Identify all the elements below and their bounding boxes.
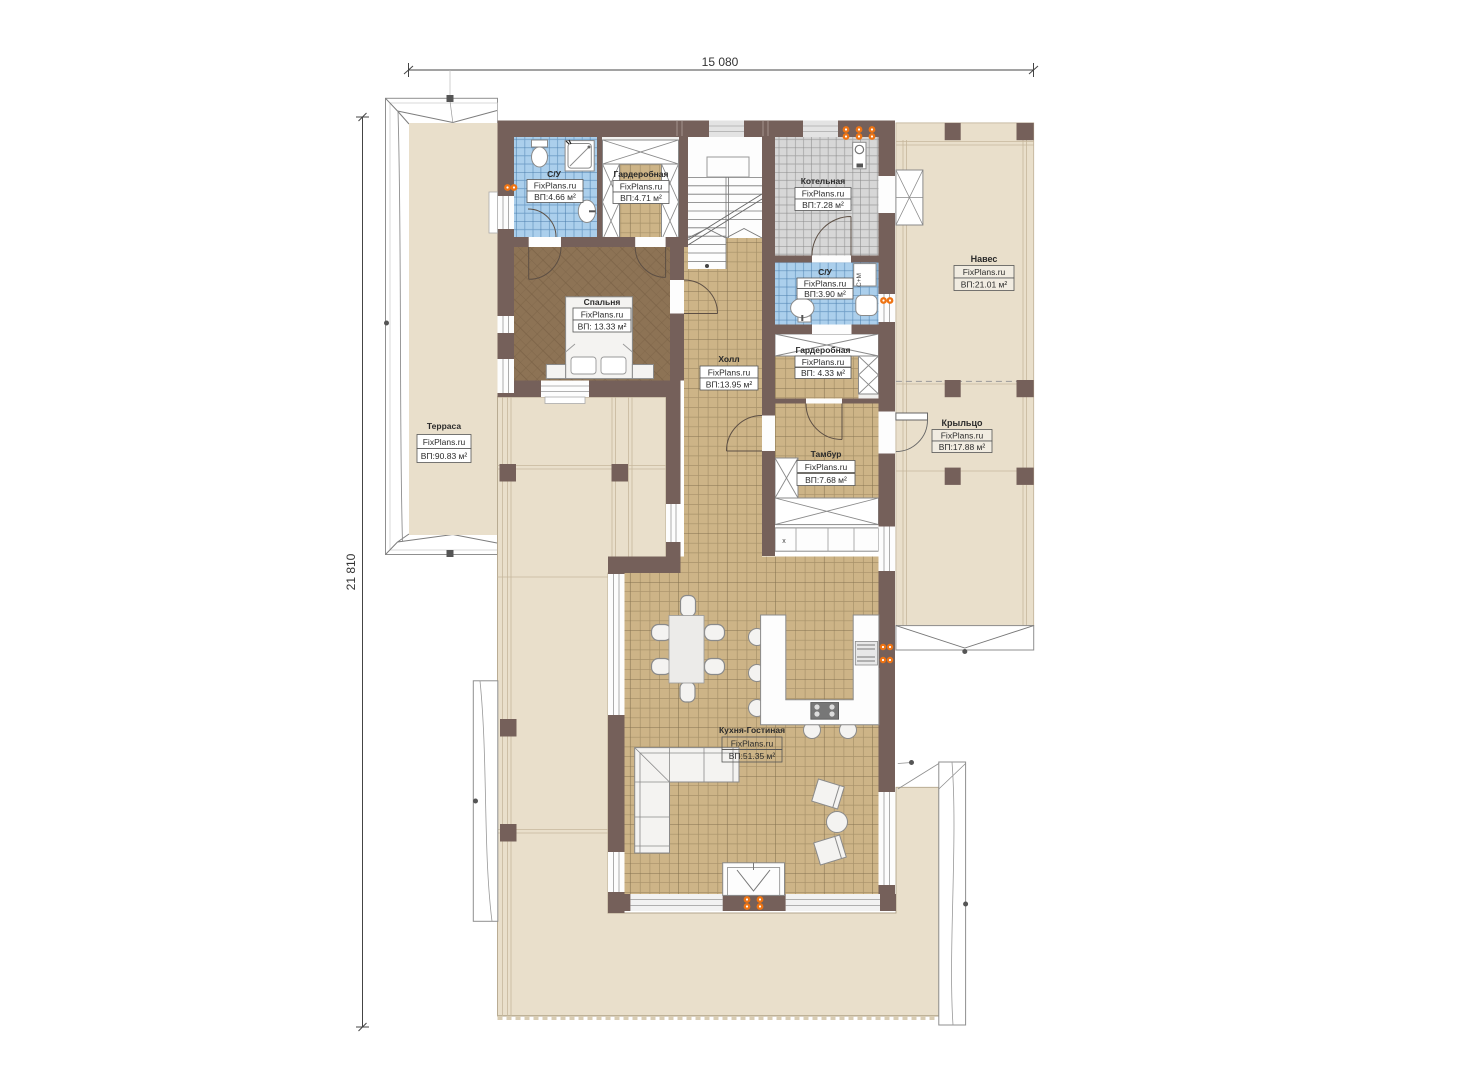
svg-text:FixPlans.ru: FixPlans.ru [941,431,984,441]
svg-text:FixPlans.ru: FixPlans.ru [731,739,774,749]
svg-text:Холл: Холл [718,354,739,364]
svg-text:FixPlans.ru: FixPlans.ru [708,368,751,378]
svg-text:Котельная: Котельная [801,176,846,186]
svg-text:21 810: 21 810 [344,553,358,590]
svg-text:FixPlans.ru: FixPlans.ru [802,357,845,367]
svg-text:FixPlans.ru: FixPlans.ru [804,279,847,289]
svg-text:ВП: 13.33 м²: ВП: 13.33 м² [578,322,627,332]
svg-text:ВП:7.28 м²: ВП:7.28 м² [802,200,844,210]
svg-text:FixPlans.ru: FixPlans.ru [805,462,848,472]
svg-text:ВП:4.66 м²: ВП:4.66 м² [534,192,576,202]
svg-text:ВП: 4.33 м²: ВП: 4.33 м² [801,368,845,378]
svg-text:Гардеробная: Гардеробная [796,345,851,355]
svg-text:ВП:51.35 м²: ВП:51.35 м² [729,751,776,761]
svg-text:Крыльцо: Крыльцо [942,418,983,428]
svg-text:С/У: С/У [547,169,562,179]
svg-text:Терраса: Терраса [427,421,461,431]
svg-text:Навес: Навес [971,254,998,264]
svg-text:ВП:3.90 м²: ВП:3.90 м² [804,289,846,299]
svg-text:Гардеробная: Гардеробная [614,169,669,179]
svg-text:Спальня: Спальня [584,297,621,307]
svg-text:FixPlans.ru: FixPlans.ru [963,267,1006,277]
svg-text:FixPlans.ru: FixPlans.ru [802,189,845,199]
svg-text:FixPlans.ru: FixPlans.ru [620,182,663,192]
svg-text:ВП:90.83 м²: ВП:90.83 м² [421,451,468,461]
svg-text:Кухня-Гостиная: Кухня-Гостиная [719,725,785,735]
svg-text:ВП:17.88 м²: ВП:17.88 м² [939,442,986,452]
svg-text:FixPlans.ru: FixPlans.ru [534,181,577,191]
svg-text:х: х [782,538,786,545]
svg-text:ВП:13.95 м²: ВП:13.95 м² [706,380,753,390]
svg-text:FixPlans.ru: FixPlans.ru [581,310,624,320]
svg-text:15 080: 15 080 [702,55,739,69]
svg-text:Тамбур: Тамбур [811,449,842,459]
svg-text:ВП:21.01 м²: ВП:21.01 м² [961,280,1008,290]
svg-text:ВП:7.68 м²: ВП:7.68 м² [805,475,847,485]
svg-text:С+М: С+М [856,273,863,287]
svg-text:FixPlans.ru: FixPlans.ru [423,437,466,447]
svg-text:ВП:4.71 м²: ВП:4.71 м² [620,193,662,203]
svg-text:С/У: С/У [818,267,833,277]
